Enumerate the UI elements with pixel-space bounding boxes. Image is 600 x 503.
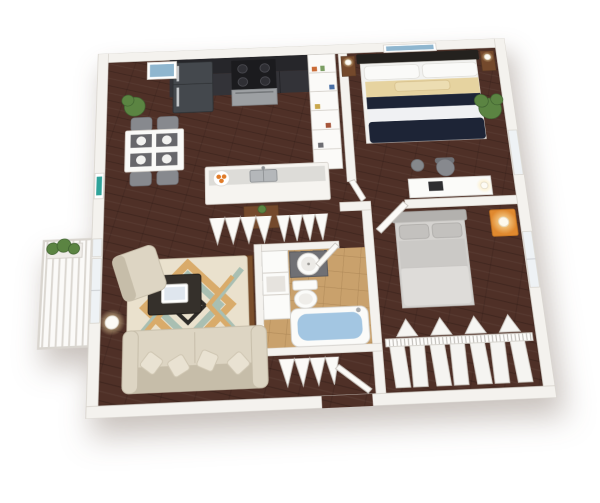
floor-plan-3d-wrapper: Balcony	[31, 38, 557, 421]
dining-chair	[131, 117, 152, 132]
balcony-door-glass	[92, 239, 102, 257]
burner	[260, 77, 270, 86]
bed2-blanket	[399, 238, 468, 268]
beach-art	[150, 64, 174, 77]
pantry-item	[326, 123, 332, 128]
bed1-pillow	[422, 62, 478, 78]
desk-laptop	[428, 181, 443, 191]
bed2-foot-blanket	[401, 265, 472, 306]
sofa-armrest	[122, 331, 139, 394]
burner	[238, 78, 248, 87]
toilet-tank	[293, 280, 318, 290]
sofa	[122, 325, 269, 394]
desk-lamp	[480, 182, 488, 189]
dining-chair	[157, 116, 178, 131]
bed2-pillow	[399, 224, 430, 239]
stove-cooktop	[231, 59, 277, 90]
fridge-handle	[177, 88, 180, 107]
pantry-item	[320, 66, 325, 72]
living-room: Living Room	[96, 239, 268, 395]
bathtub-water	[297, 312, 363, 341]
pantry-item	[329, 85, 334, 90]
dining-chair	[130, 171, 152, 186]
bathroom: Bathroom	[261, 242, 372, 349]
dining-chair	[157, 170, 179, 185]
teal-art	[96, 177, 102, 196]
sofa-armrest	[251, 325, 268, 388]
counter-plant	[258, 205, 266, 213]
accent-pillow	[394, 80, 450, 92]
dining-plant	[122, 95, 134, 107]
floor-plan-stage: Balcony	[0, 0, 600, 503]
pantry-item	[318, 143, 324, 148]
bed1-pillow	[364, 64, 420, 80]
entry-opening	[322, 394, 374, 408]
fruit-bowl	[213, 170, 229, 186]
floor-plan-svg: Balcony	[31, 38, 557, 421]
tablet-screen	[164, 287, 185, 301]
table-lamp	[345, 60, 351, 66]
burner	[260, 64, 270, 73]
bed2-pillow	[432, 223, 463, 238]
burner	[238, 64, 248, 73]
floor-lamp	[105, 316, 119, 330]
pantry-item	[312, 67, 317, 72]
pantry-item	[315, 104, 321, 109]
linen-cubby	[266, 276, 285, 292]
table-lamp	[484, 54, 491, 60]
balcony: Balcony	[38, 238, 92, 349]
bedroom-divider-wall-left	[340, 201, 371, 211]
